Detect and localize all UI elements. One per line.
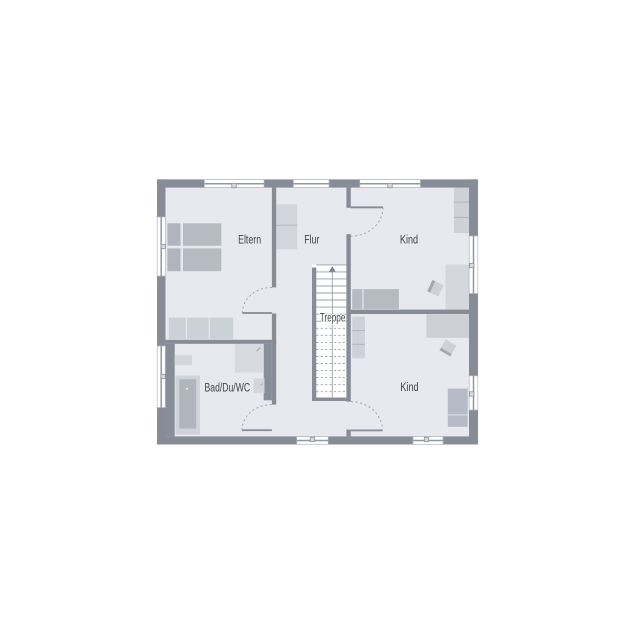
svg-text:Treppe: Treppe bbox=[320, 313, 346, 325]
svg-text:Bad/Du/WC: Bad/Du/WC bbox=[205, 383, 251, 395]
svg-text:Kind: Kind bbox=[400, 234, 418, 246]
svg-text:Eltern: Eltern bbox=[238, 234, 261, 246]
svg-text:Kind: Kind bbox=[400, 382, 418, 394]
svg-text:Flur: Flur bbox=[304, 234, 319, 246]
